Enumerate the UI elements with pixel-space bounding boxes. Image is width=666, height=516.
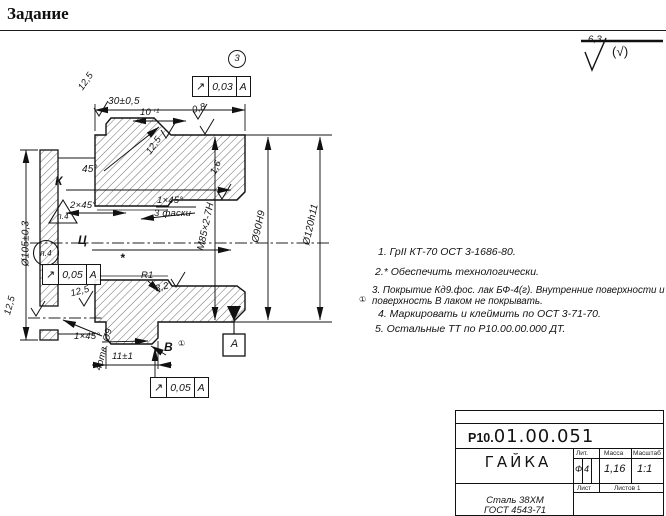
tolerance-value: 0,05 [59, 265, 86, 284]
tolerance-value: 0,05 [167, 378, 194, 397]
tolerance-datum: А [195, 378, 208, 397]
doc-number: Р10.01.00.051 [468, 426, 594, 447]
material-spec: Сталь 38ХМ ГОСТ 4543-71 [460, 496, 570, 516]
mass-label: Масса [604, 450, 623, 457]
runout-icon: ↗ [193, 77, 209, 96]
surface-k-label: К [55, 176, 63, 187]
lit-label: Лит. [576, 450, 588, 457]
dim-11: 11±1 [112, 351, 133, 362]
tolerance-datum: А [237, 77, 250, 96]
tech-req-2: 2.* Обеспечить технологически. [375, 266, 539, 278]
mass-value: 1,16 [604, 463, 625, 475]
tech-req-5: 5. Остальные ТТ по Р10.00.00.000 ДТ. [375, 323, 565, 335]
scale-label: Масштаб [633, 450, 661, 457]
tolerance-frame-left: ↗ 0,05 А [42, 264, 101, 285]
dim-45deg: 45° [82, 164, 98, 175]
doc-number-prefix: Р10. [468, 431, 494, 445]
tolerance-frame-top: ↗ 0,03 А [192, 76, 251, 97]
dim-2x45: 2×45° [70, 200, 96, 211]
tolerance-frame-bottom: ↗ 0,05 А [150, 377, 209, 398]
tech-req-1: 1. ГрII КТ-70 ОСТ 3-1686-80. [378, 246, 516, 258]
tolerance-value: 0,03 [209, 77, 236, 96]
dim-30: 30±0,5 [108, 96, 140, 107]
material-line2: ГОСТ 4543-71 [460, 506, 570, 516]
flag-p4-triangle: п.4 [52, 211, 74, 222]
drawing-sheet: Задание [0, 0, 666, 516]
doc-number-main: 01.00.051 [494, 426, 595, 447]
dim-1x45-mid: 1×45° [157, 195, 183, 206]
runout-icon: ↗ [43, 265, 59, 284]
general-roughness-value: 6,3 [588, 34, 602, 45]
scale-value: 1:1 [637, 463, 652, 475]
dim-dia105: Ø105±0,3 [21, 204, 32, 284]
sheets-label: Листов 1 [614, 485, 641, 492]
title-block: Р10.01.00.051 ГАЙКА Лит. Масса Масштаб Ф… [455, 410, 664, 516]
general-roughness-alt: (√) [612, 46, 628, 57]
tech-req-3: 3. Покрытие Кд9.фос. лак БФ-4(г). Внутре… [372, 286, 666, 307]
flange-neck-lines [58, 158, 95, 334]
view-b-label: В [164, 342, 173, 353]
tolerance-datum: А [87, 265, 100, 284]
revision-mark: ① [359, 294, 366, 305]
sheet-label: Лист [577, 485, 591, 492]
datum-a-label: А [224, 339, 245, 350]
tech-req-4: 4. Маркировать и клеймить по ОСТ 3-71-70… [378, 308, 601, 320]
facets-note: 3 фаски [154, 208, 191, 219]
radius-r1: R1 [141, 270, 154, 281]
part-name: ГАЙКА [470, 453, 566, 471]
runout-icon: ↗ [151, 378, 167, 397]
surface-c-label: Ц [78, 235, 87, 246]
view-b-rev-mark: ① [178, 338, 185, 349]
position-mark-3: 3 [228, 50, 246, 68]
asterisk-mark: * [120, 253, 125, 264]
dim-1x45-bottom: 1×45° [74, 331, 100, 342]
flag-p4-circle: п.4 [35, 248, 57, 259]
dim-10: 10⁺¹ [140, 107, 160, 118]
lit-value-1: Ф [575, 464, 582, 474]
lit-value-2: 4 [584, 464, 589, 474]
